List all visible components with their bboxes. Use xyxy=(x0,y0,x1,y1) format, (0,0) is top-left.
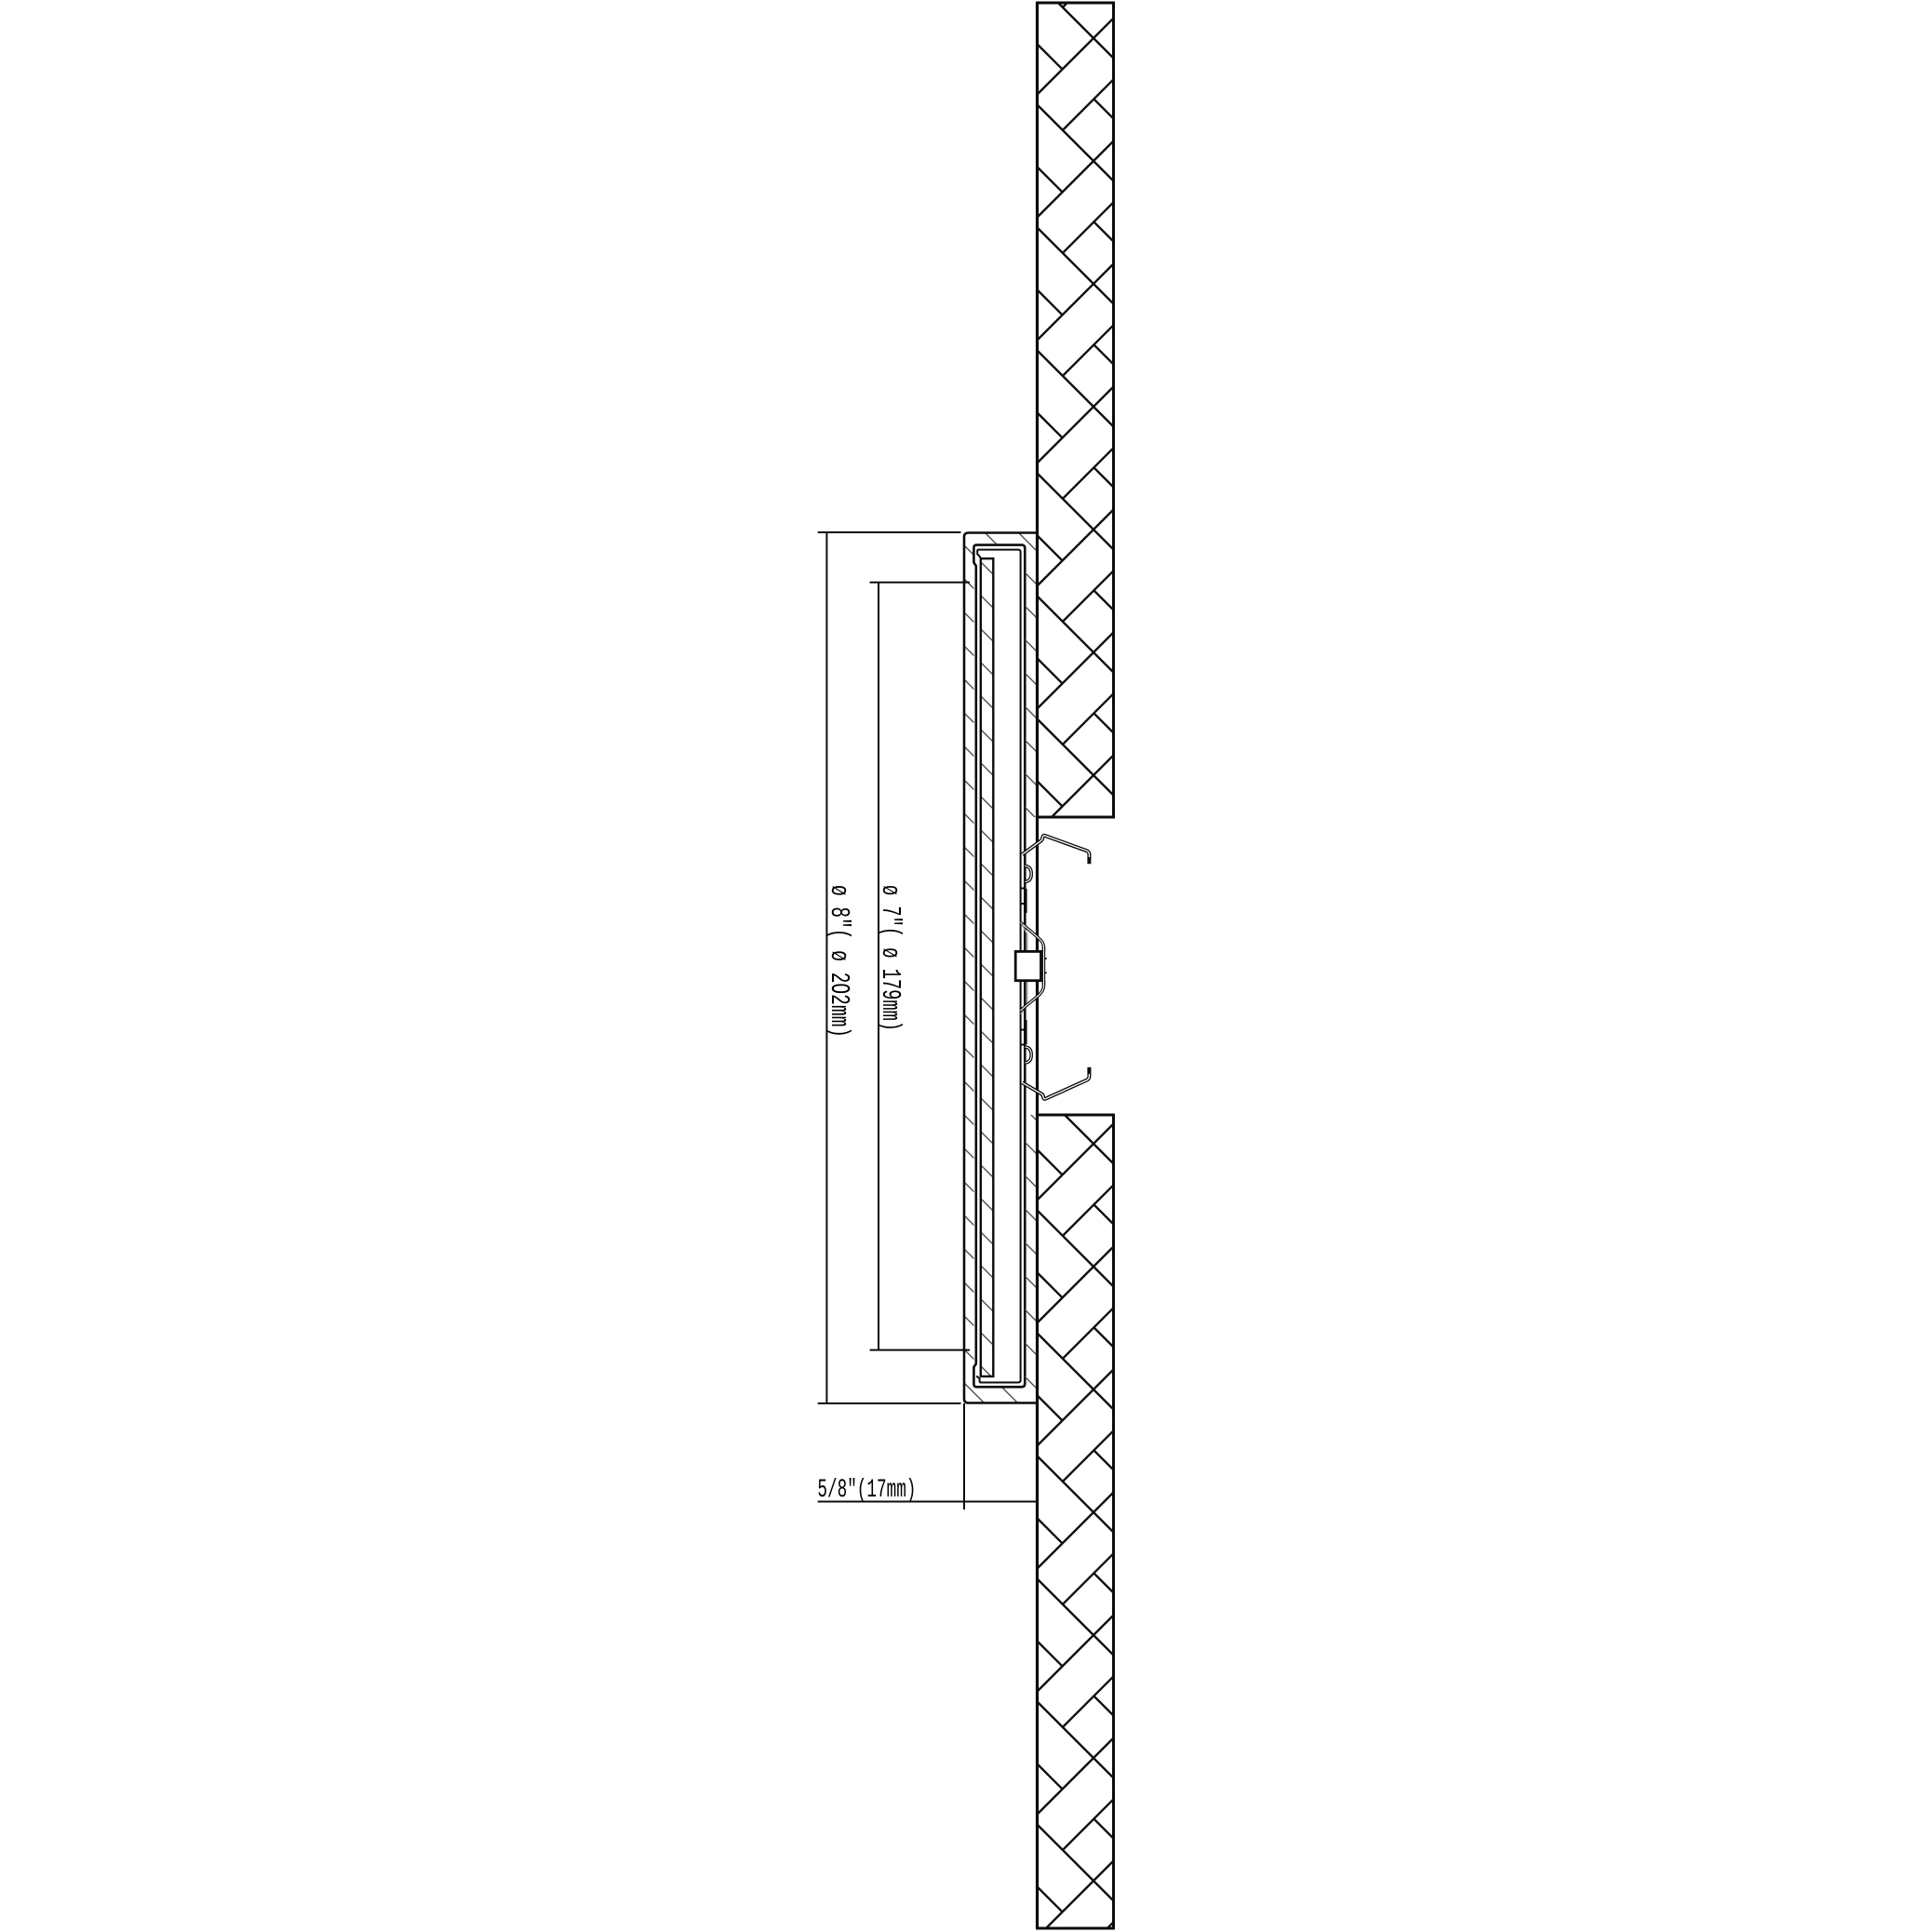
svg-text:ø 7"( ø 179mm): ø 7"( ø 179mm) xyxy=(875,885,906,1031)
svg-text:ø 8"( ø 2O2mm): ø 8"( ø 2O2mm) xyxy=(824,885,854,1038)
svg-text:5/8"(17mm): 5/8"(17mm) xyxy=(817,1476,916,1505)
